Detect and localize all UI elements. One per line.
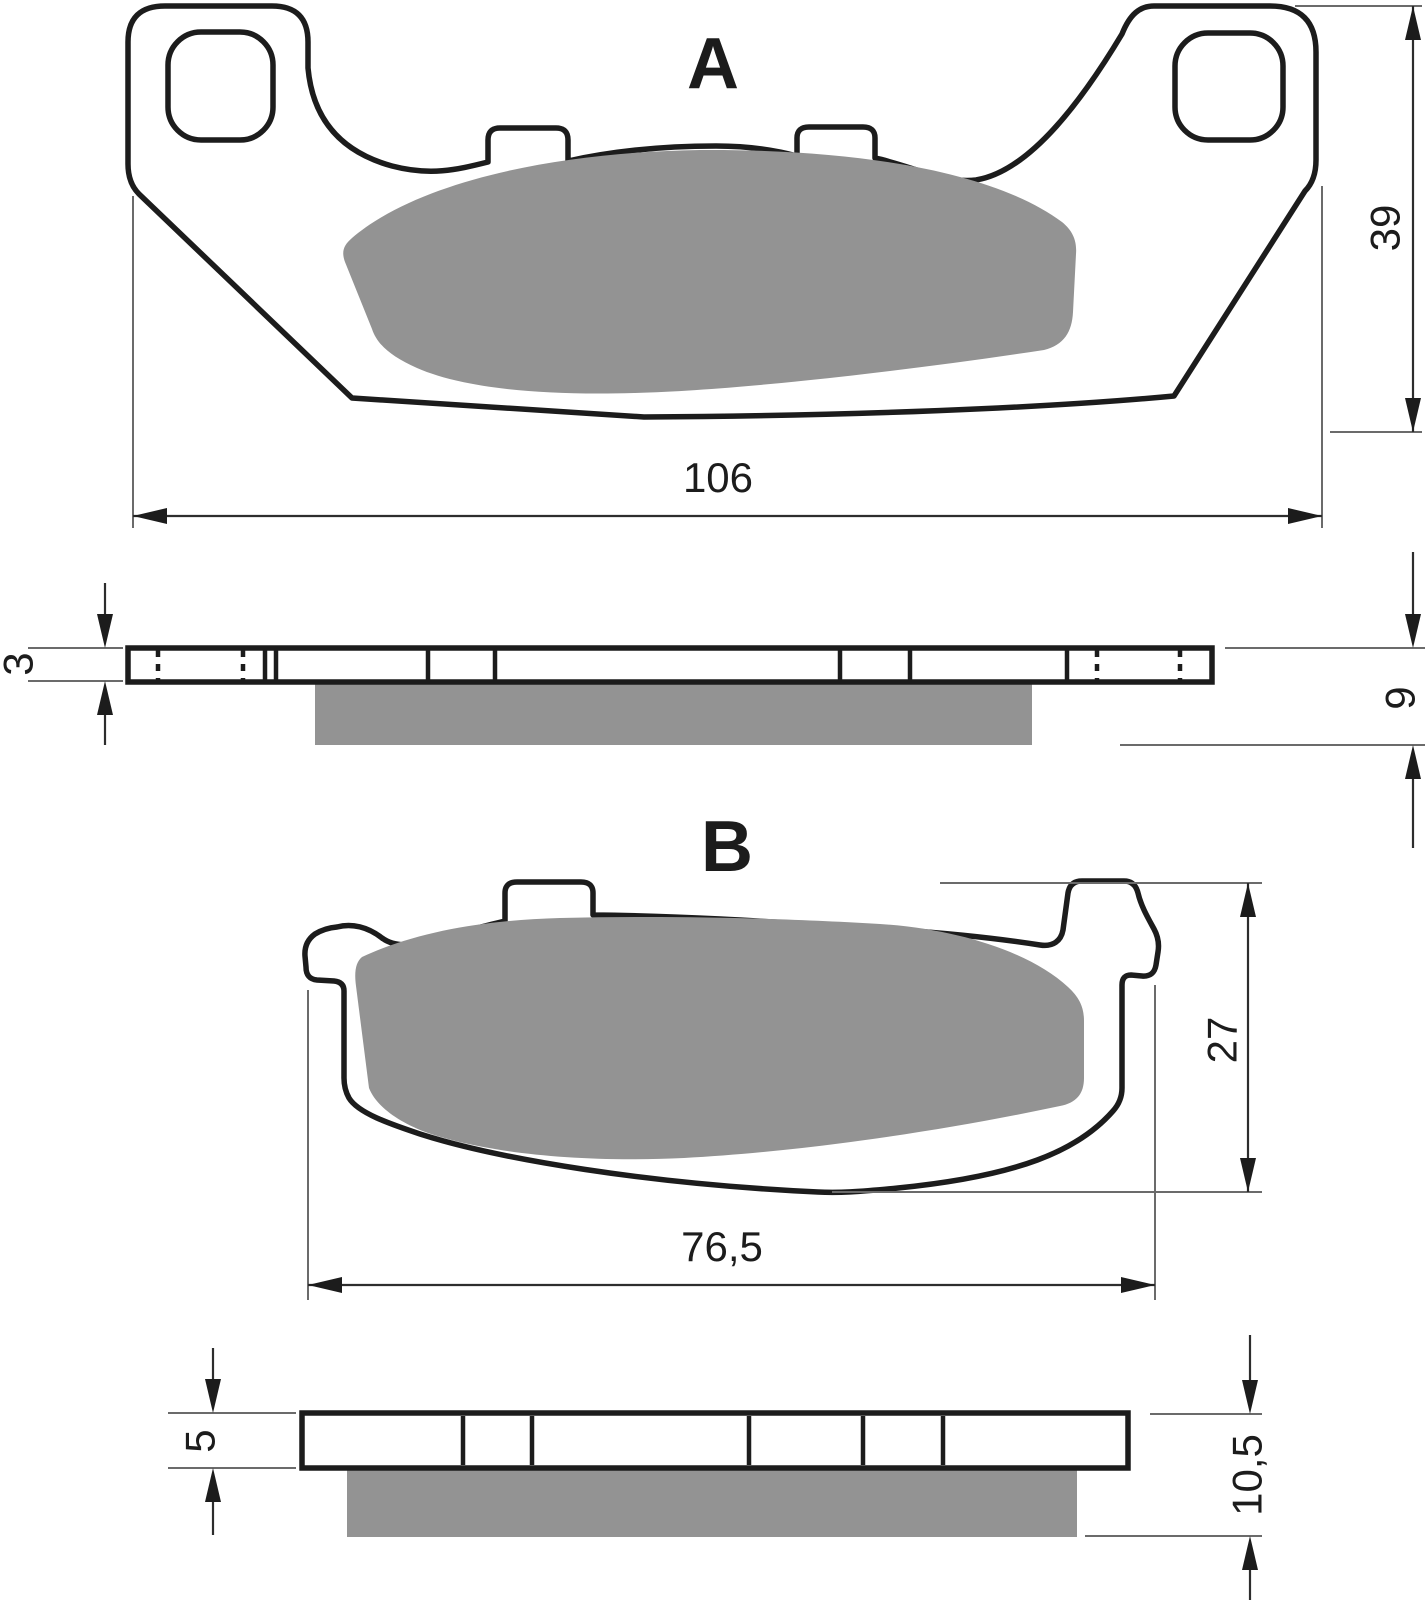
arrow-down-icon — [1240, 1158, 1256, 1192]
pad-a-height-value: 39 — [1362, 205, 1409, 252]
arrow-down-icon — [1405, 614, 1421, 648]
pad-b-plate-thickness-value: 5 — [177, 1429, 224, 1452]
pad-a-right-mounting-hole — [1175, 33, 1283, 140]
pad-a-side-friction — [315, 682, 1032, 745]
pad-b-front-view: B — [305, 807, 1159, 1192]
arrow-right-icon — [1121, 1277, 1155, 1293]
pad-a-plate-thickness-value: 3 — [0, 652, 42, 675]
pad-a-left-mounting-hole — [168, 32, 273, 140]
pad-b-total-thickness-value: 10,5 — [1224, 1434, 1271, 1516]
pad-b-side-backplate — [302, 1413, 1128, 1468]
pad-b-side-view — [302, 1413, 1128, 1537]
arrow-up-icon — [1240, 883, 1256, 917]
arrow-up-icon — [97, 681, 113, 715]
pad-b-label: B — [701, 807, 753, 887]
pad-a-side-backplate — [128, 648, 1212, 682]
arrow-up-icon — [1405, 745, 1421, 779]
arrow-left-icon — [133, 508, 167, 524]
arrow-up-icon — [1242, 1536, 1258, 1570]
pad-a-width-value: 106 — [683, 454, 753, 501]
arrow-down-icon — [1405, 398, 1421, 432]
pad-a-plate-thickness-dimension: 3 — [0, 583, 123, 745]
pad-a-label: A — [687, 24, 739, 104]
pad-a-total-thickness-dimension: 9 — [1120, 552, 1425, 848]
pad-b-width-value: 76,5 — [681, 1223, 763, 1270]
pad-a-total-thickness-value: 9 — [1377, 686, 1424, 709]
arrow-up-icon — [205, 1468, 221, 1502]
extension-lines — [28, 648, 123, 681]
arrow-down-icon — [97, 614, 113, 648]
pad-a-front-view: A — [128, 6, 1316, 417]
pad-b-side-friction — [347, 1468, 1077, 1537]
technical-drawing: A 106 39 3 9 — [0, 0, 1427, 1600]
arrow-right-icon — [1288, 508, 1322, 524]
pad-b-plate-thickness-dimension: 5 — [168, 1348, 296, 1535]
brake-pad-diagram: A 106 39 3 9 — [0, 0, 1427, 1600]
pad-b-height-value: 27 — [1199, 1017, 1246, 1064]
pad-a-side-view — [128, 648, 1212, 745]
arrow-down-icon — [1242, 1380, 1258, 1414]
pad-a-friction-material — [343, 150, 1076, 394]
arrow-down-icon — [205, 1379, 221, 1413]
arrow-left-icon — [308, 1277, 342, 1293]
arrow-up-icon — [1405, 6, 1421, 40]
